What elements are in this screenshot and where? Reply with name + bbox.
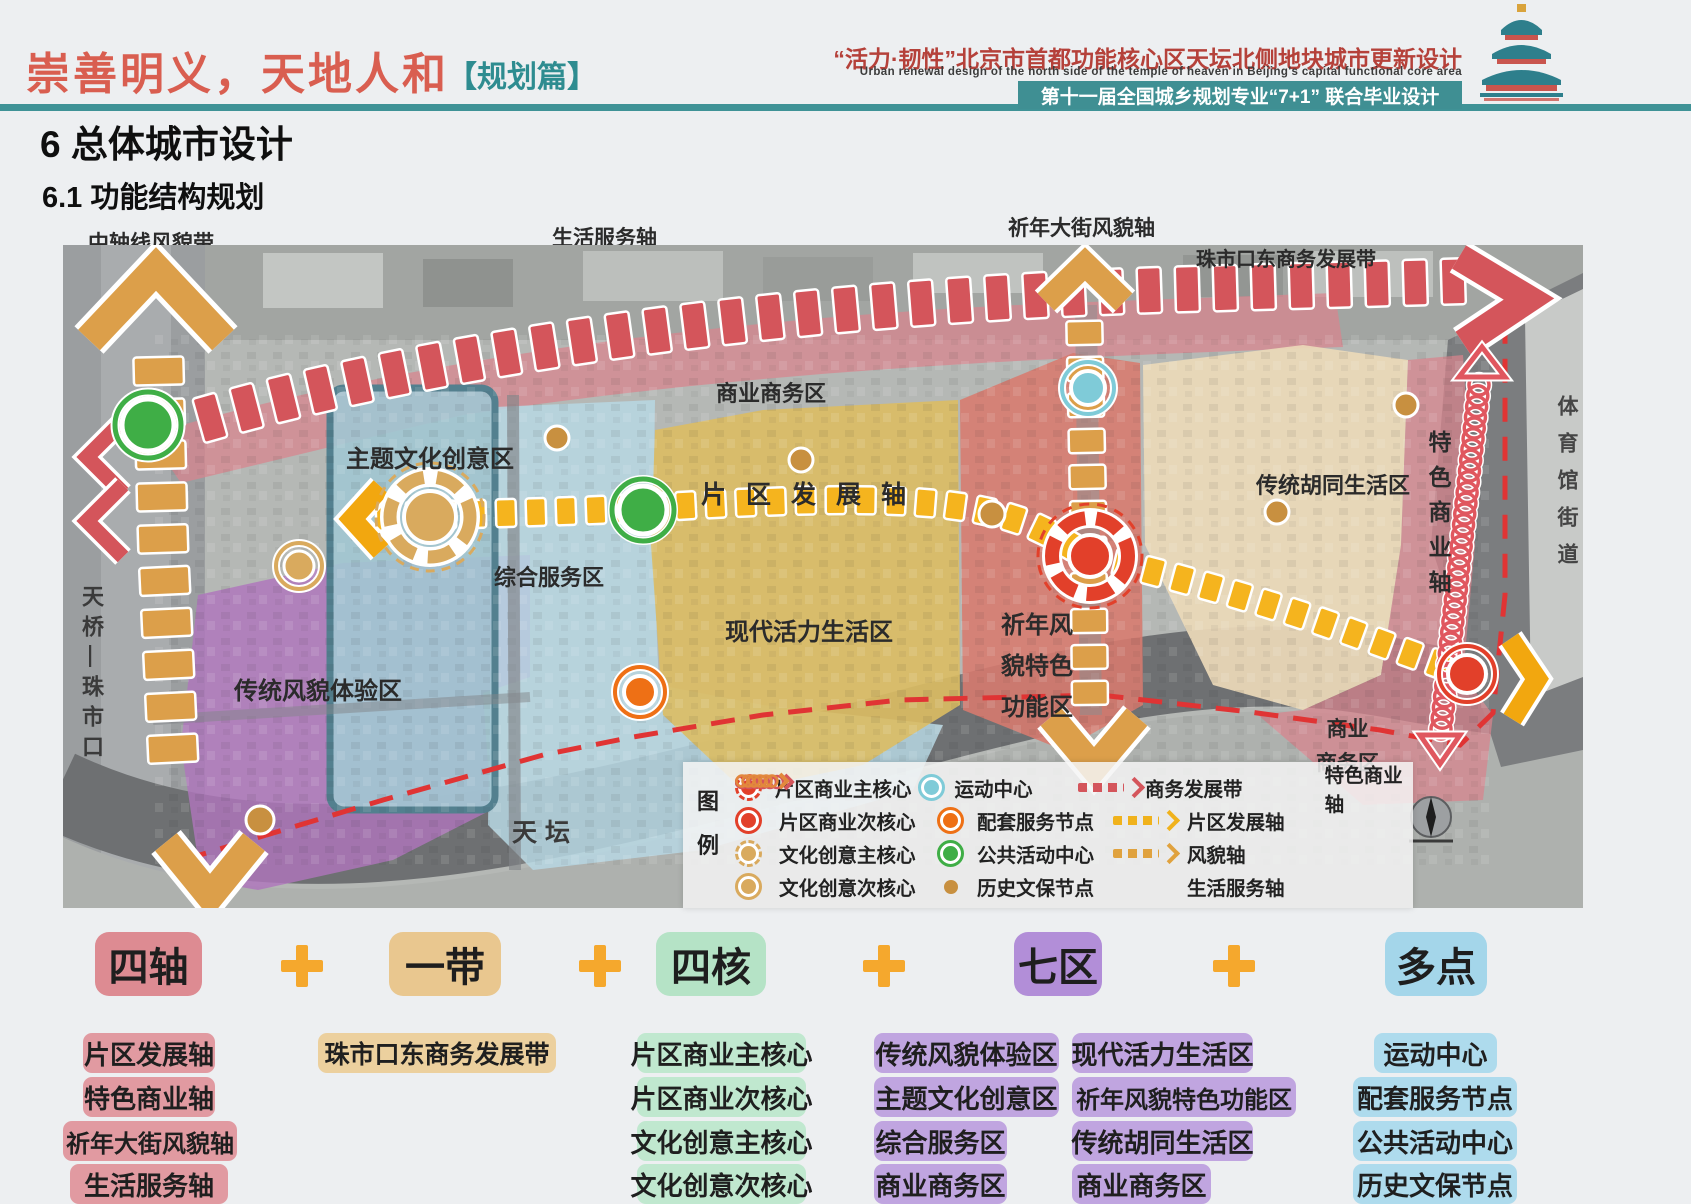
legend-label: 风貌轴 <box>1187 839 1303 868</box>
zone-label-hutong-life: 传统胡同生活区 <box>1256 468 1410 500</box>
node-public-activity-west <box>115 392 181 458</box>
slide: 崇善明义，天地人和 【规划篇】 “活力·韧性”北京市首都功能核心区天坛北侧地块城… <box>0 0 1691 1204</box>
legend-icon-dev-axis <box>1113 816 1159 825</box>
plus-icon <box>863 945 905 987</box>
summary-head-seven-zones: 七区 <box>1014 932 1102 996</box>
summary-item: 珠市口东商务发展带 <box>318 1033 556 1073</box>
street-label-tiantan: 天坛 <box>512 813 578 849</box>
legend-row: 片区商业主核心 运动中心 商务发展带 特色 <box>735 771 1413 804</box>
summary-item: 祈年大街风貌轴 <box>63 1121 237 1161</box>
motto-title: 崇善明义，天地人和 <box>26 38 449 102</box>
legend-label: 片区商业主核心 <box>775 773 918 802</box>
legend-label: 片区发展轴 <box>1187 806 1303 835</box>
legend-icon-culture-secondary <box>741 879 756 894</box>
legend-icon-support-service <box>943 813 958 828</box>
summary-head-one-belt: 一带 <box>389 932 501 996</box>
plus-icon <box>281 945 323 987</box>
legend-icon-business-belt <box>1078 783 1124 792</box>
legend-label: 文化创意次核心 <box>779 872 937 901</box>
summary-item: 商业商务区 <box>874 1164 1007 1204</box>
summary-item: 配套服务节点 <box>1353 1077 1517 1117</box>
summary-item: 运动中心 <box>1374 1033 1497 1073</box>
summary-item: 片区发展轴 <box>83 1033 215 1073</box>
axis-label-qinian: 祈年大街风貌轴 <box>1008 212 1155 242</box>
legend-label: 运动中心 <box>955 773 1078 802</box>
legend-label: 片区商业次核心 <box>779 806 937 835</box>
summary-item: 片区商业主核心 <box>637 1033 806 1073</box>
summary-item: 传统风貌体验区 <box>874 1033 1059 1073</box>
zone-label-modern-life: 现代活力生活区 <box>725 612 893 647</box>
summary-item: 文化创意次核心 <box>637 1164 806 1204</box>
summary-head-four-cores: 四核 <box>656 932 766 996</box>
legend-icon-public-activity <box>943 846 958 861</box>
legend-row: 片区商业次核心 配套服务节点 片区发展轴 <box>735 804 1413 837</box>
functional-structure-map: 商业商务区 主题文化创意区 综合服务区 传统风貌体验区 现代活力生活区 祈年风 … <box>63 245 1583 908</box>
legend-title: 图 例 <box>697 780 719 868</box>
temple-of-heaven-logo-icon <box>1474 2 1569 102</box>
node-support-service <box>615 667 665 717</box>
summary-item: 商业商务区 <box>1072 1164 1211 1204</box>
legend-label: 生活服务轴 <box>1187 872 1303 901</box>
summary-head-four-axes: 四轴 <box>95 932 202 996</box>
legend-icon-culture-main <box>741 846 756 861</box>
summary-item: 公共活动中心 <box>1353 1121 1517 1161</box>
summary-item: 片区商业次核心 <box>637 1077 806 1117</box>
plus-icon <box>1213 945 1255 987</box>
street-label-tianqiao: 天桥—珠市口 <box>75 585 107 765</box>
legend-label: 文化创意主核心 <box>779 839 937 868</box>
legend-icon-business-secondary <box>741 813 756 828</box>
summary-item: 生活服务轴 <box>70 1164 228 1204</box>
node-culture-secondary <box>276 543 322 589</box>
summary-item: 历史文保节点 <box>1353 1164 1517 1204</box>
node-sports-center <box>1062 362 1114 414</box>
legend: 图 例 片区商业主核心 运动中心 商务发展带 <box>683 762 1413 908</box>
legend-icon-style-axis <box>1113 849 1159 858</box>
zone-label-theme-culture: 主题文化创意区 <box>346 439 514 474</box>
chapter-title: 6 总体城市设计 <box>40 114 293 168</box>
zone-label-composite-service: 综合服务区 <box>494 560 604 592</box>
section-tag: 【规划篇】 <box>447 52 597 96</box>
summary-item: 祈年风貌特色功能区 <box>1072 1077 1296 1117</box>
axis-label-zhushikou: 珠市口东商务发展带 <box>1196 243 1376 272</box>
legend-label: 公共活动中心 <box>977 839 1113 868</box>
summary-item: 文化创意主核心 <box>637 1121 806 1161</box>
zone-label-traditional-style: 传统风貌体验区 <box>234 671 402 706</box>
summary-item: 传统胡同生活区 <box>1072 1121 1253 1161</box>
summary-item: 主题文化创意区 <box>874 1077 1059 1117</box>
node-business-secondary <box>1439 646 1495 702</box>
legend-icon-sports-center <box>924 780 939 795</box>
axis-text-special-business: 特色商业轴 <box>1421 430 1455 605</box>
subsection-title: 6.1 功能结构规划 <box>42 174 264 216</box>
legend-label: 历史文保节点 <box>977 872 1113 901</box>
plus-icon <box>579 945 621 987</box>
zone-label-business-strip: 商业商务区 <box>716 376 826 408</box>
legend-row: 文化创意次核心 历史文保节点 生活服务轴 <box>735 870 1413 903</box>
competition-banner: 第十一届全国城乡规划专业“7+1” 联合毕业设计 <box>1018 81 1462 109</box>
axis-text-development: 片区发展轴 <box>701 475 926 511</box>
street-label-gymnasium: 体育馆街道 <box>1551 395 1581 580</box>
project-title-en: Urban renewal design of the north side o… <box>700 66 1462 78</box>
legend-label: 特色商业轴 <box>1325 759 1413 817</box>
summary-item: 综合服务区 <box>874 1121 1007 1161</box>
legend-label: 商务发展带 <box>1145 773 1250 802</box>
summary-item: 特色商业轴 <box>83 1077 215 1117</box>
summary-item: 现代活力生活区 <box>1072 1033 1253 1073</box>
zone-label-qinian-feature: 祈年风 貌特色 功能区 <box>1001 605 1073 728</box>
legend-icon-life-service-axis <box>735 771 795 791</box>
summary-head-multi-points: 多点 <box>1385 932 1487 996</box>
legend-row: 文化创意主核心 公共活动中心 风貌轴 <box>735 837 1413 870</box>
legend-label: 配套服务节点 <box>977 806 1113 835</box>
legend-icon-heritage <box>944 880 958 894</box>
node-public-activity-center <box>612 479 674 541</box>
